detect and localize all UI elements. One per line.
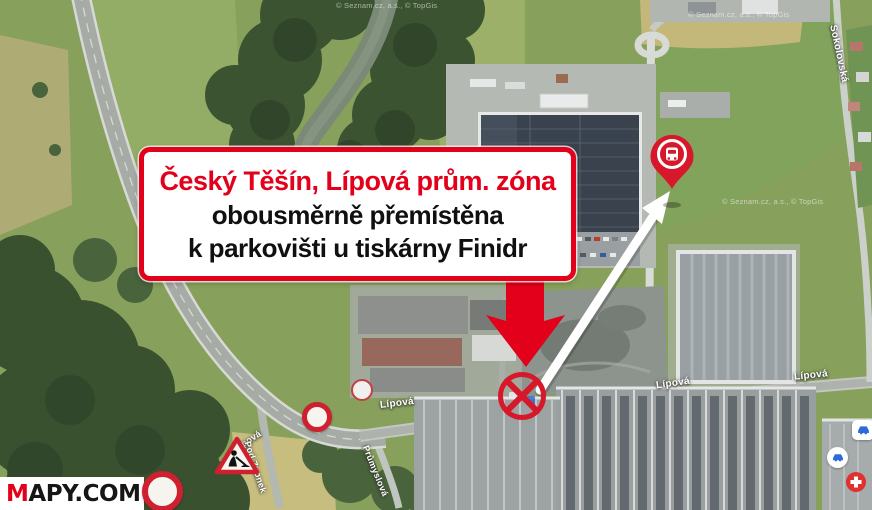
roadworks-sign (214, 436, 260, 476)
mapy-logo-first-letter: M (6, 481, 28, 507)
notice-line-1: obousměrně přemístěna (212, 202, 503, 228)
no-vehicles-sign (142, 471, 183, 510)
map-notice-image: © Seznam.cz, a.s., © TopGis © Seznam.cz,… (0, 0, 872, 510)
car-poi-icon (852, 420, 872, 440)
pharmacy-cross-icon (846, 472, 866, 492)
map-attribution: © Seznam.cz, a.s., © TopGis (722, 197, 823, 206)
map-attribution: © Seznam.cz, a.s., © TopGis (336, 1, 437, 10)
mapy-logo: MAPY.COM (0, 477, 144, 510)
no-vehicles-sign (302, 402, 332, 432)
notice-title: Český Těšín, Lípová prům. zóna (159, 168, 555, 195)
notice-line-2: k parkovišti u tiskárny Finidr (188, 235, 527, 261)
map-attribution: © Seznam.cz, a.s., © TopGis (688, 10, 789, 19)
car-poi-icon (827, 447, 848, 468)
relocation-notice-box: Český Těšín, Lípová prům. zóna obousměrn… (139, 147, 576, 281)
mapy-logo-rest: APY.COM (28, 481, 140, 507)
